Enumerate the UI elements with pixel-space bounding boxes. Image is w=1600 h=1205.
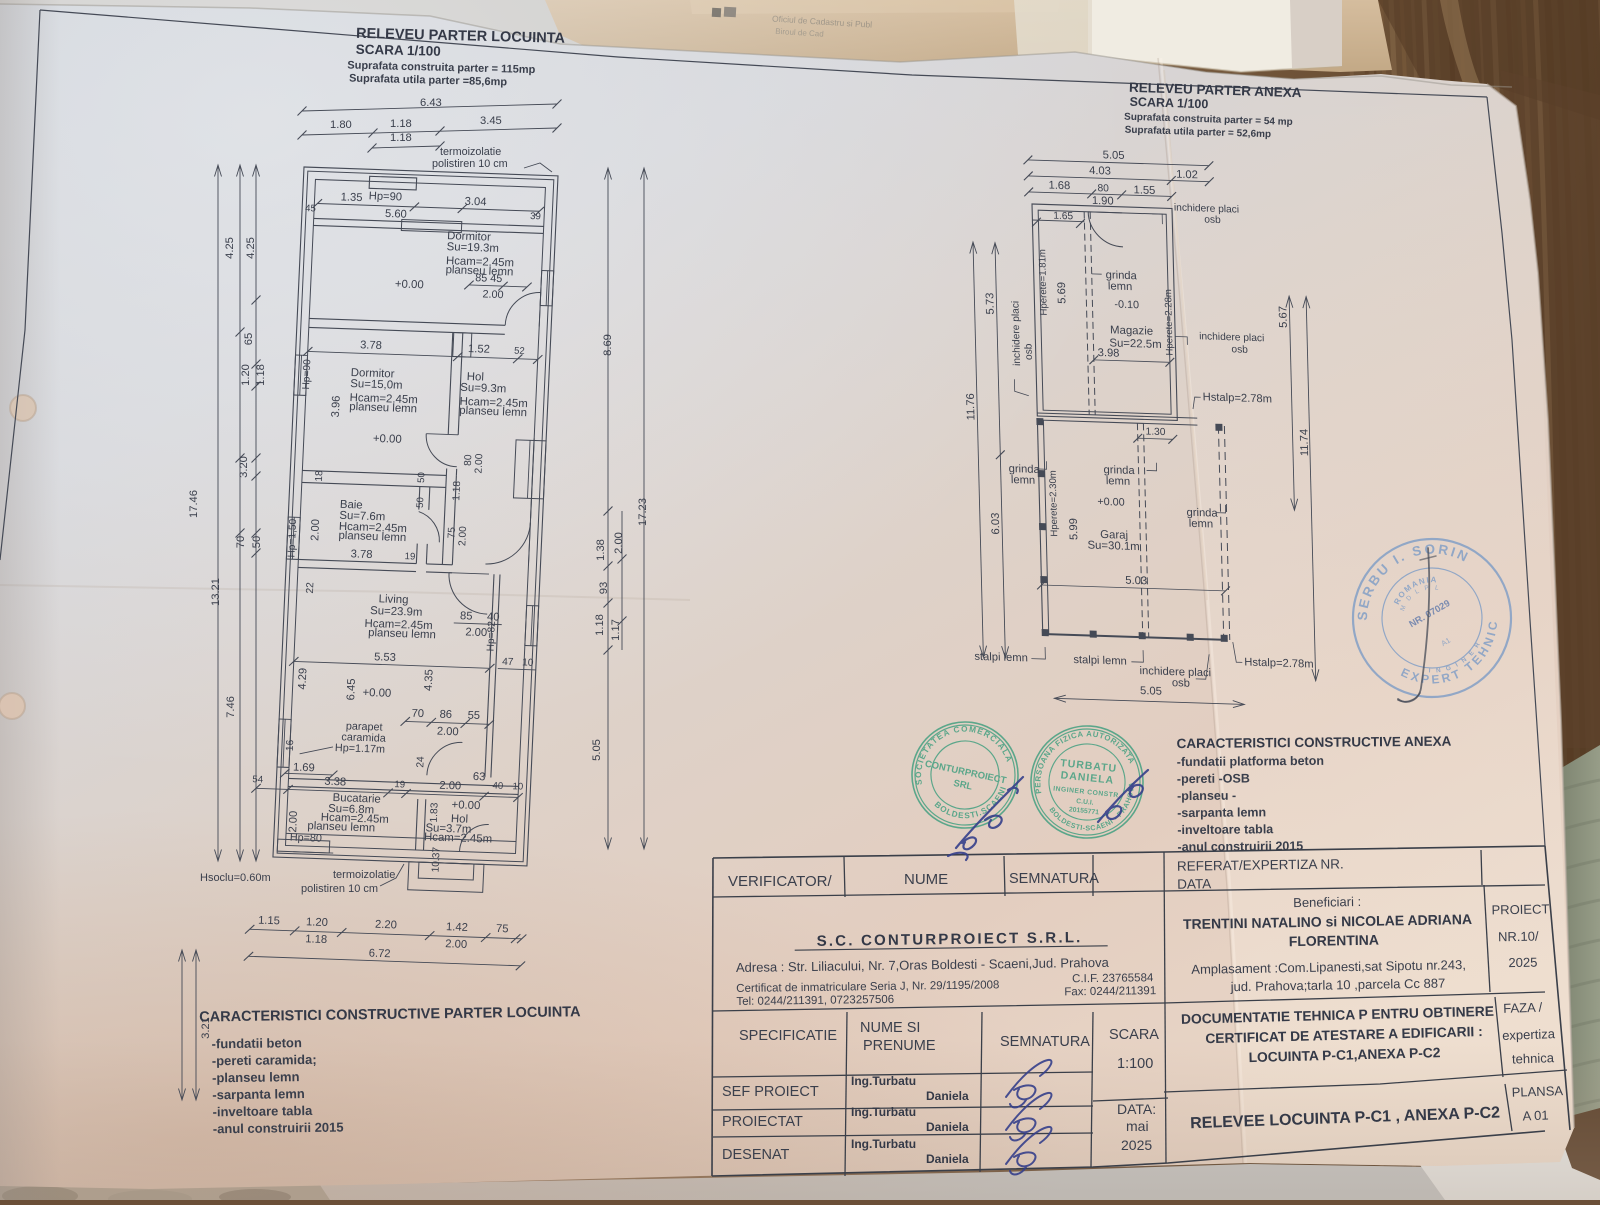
svg-text:19: 19 — [404, 551, 415, 562]
svg-text:3.78: 3.78 — [360, 339, 382, 352]
svg-text:Hsoclu=0.60m: Hsoclu=0.60m — [200, 872, 271, 884]
svg-text:Su=30.1m: Su=30.1m — [1087, 540, 1140, 554]
svg-text:1.69: 1.69 — [293, 762, 315, 775]
svg-text:11.74: 11.74 — [1298, 429, 1311, 457]
svg-text:-inveltoare tabla: -inveltoare tabla — [1177, 822, 1274, 837]
svg-text:80: 80 — [1097, 183, 1109, 194]
svg-text:inchidere placi: inchidere placi — [1199, 331, 1264, 344]
svg-text:5.05: 5.05 — [1103, 149, 1125, 162]
svg-text:2.00: 2.00 — [613, 532, 625, 554]
svg-text:lemn: lemn — [1108, 280, 1133, 293]
svg-text:2.00: 2.00 — [309, 519, 322, 541]
svg-text:stalpi lemn: stalpi lemn — [1073, 654, 1127, 668]
svg-text:Hperete=1.81m: Hperete=1.81m — [1037, 249, 1050, 316]
svg-text:1.52: 1.52 — [468, 343, 490, 356]
svg-text:SCARA 1/100: SCARA 1/100 — [1129, 95, 1208, 111]
svg-text:expertiza: expertiza — [1502, 1026, 1556, 1043]
svg-text:-pereti caramida;: -pereti caramida; — [212, 1052, 317, 1068]
svg-text:Hp=90: Hp=90 — [369, 190, 403, 203]
svg-text:DATA: DATA — [1177, 876, 1211, 891]
svg-text:22: 22 — [305, 582, 317, 594]
svg-text:70: 70 — [411, 708, 424, 720]
svg-text:+0.00: +0.00 — [373, 433, 402, 446]
svg-text:16: 16 — [285, 739, 297, 751]
svg-text:4.25: 4.25 — [224, 237, 236, 259]
svg-text:osb: osb — [1204, 215, 1221, 227]
svg-text:3.98: 3.98 — [1098, 347, 1120, 360]
svg-text:1.55: 1.55 — [1133, 184, 1155, 197]
svg-text:planseu lemn: planseu lemn — [349, 401, 417, 415]
svg-text:2.00: 2.00 — [445, 938, 467, 951]
svg-text:1.02: 1.02 — [1176, 169, 1198, 182]
svg-text:1.80: 1.80 — [330, 119, 352, 131]
svg-text:1.68: 1.68 — [1048, 180, 1070, 193]
svg-text:6.72: 6.72 — [368, 948, 390, 961]
svg-text:planseu lemn: planseu lemn — [338, 530, 406, 544]
svg-text:Daniela: Daniela — [926, 1120, 969, 1134]
svg-text:NUME SI: NUME SI — [860, 1020, 920, 1036]
svg-text:70: 70 — [235, 536, 247, 548]
svg-text:Hperete=2.28m: Hperete=2.28m — [1163, 289, 1176, 356]
svg-text:mai: mai — [1126, 1118, 1149, 1134]
svg-text:5.53: 5.53 — [374, 651, 396, 664]
svg-text:-pereti -OSB: -pereti -OSB — [1177, 771, 1250, 786]
svg-text:2.00: 2.00 — [457, 526, 469, 547]
svg-text:Su=9.3m: Su=9.3m — [460, 382, 506, 396]
svg-text:-fundatii beton: -fundatii beton — [212, 1035, 303, 1051]
svg-text:termoizolatie: termoizolatie — [333, 869, 395, 881]
svg-text:4.35: 4.35 — [423, 669, 436, 691]
svg-text:Su=23.9m: Su=23.9m — [370, 605, 423, 619]
svg-text:Ing.Turbatu: Ing.Turbatu — [851, 1137, 916, 1151]
svg-text:SEMNATURA: SEMNATURA — [1000, 1034, 1090, 1050]
svg-text:45: 45 — [305, 203, 316, 214]
svg-text:85: 85 — [460, 610, 473, 622]
svg-text:+0.00: +0.00 — [395, 278, 424, 291]
svg-text:3.96: 3.96 — [330, 395, 343, 417]
svg-text:PRENUME: PRENUME — [863, 1038, 936, 1054]
svg-text:3.78: 3.78 — [350, 548, 372, 561]
svg-text:PLANSA: PLANSA — [1511, 1083, 1563, 1100]
svg-text:FLORENTINA: FLORENTINA — [1289, 932, 1379, 950]
svg-text:2.00: 2.00 — [465, 626, 487, 639]
svg-text:planseu lemn: planseu lemn — [459, 405, 527, 419]
svg-text:75: 75 — [496, 923, 509, 935]
svg-text:1.18: 1.18 — [305, 933, 327, 946]
svg-text:lemn: lemn — [1106, 475, 1131, 488]
svg-text:1.18: 1.18 — [255, 364, 267, 386]
svg-text:63: 63 — [473, 771, 486, 783]
svg-text:5.99: 5.99 — [1068, 518, 1081, 540]
svg-text:polistiren 10 cm: polistiren 10 cm — [432, 158, 508, 170]
svg-text:1.17: 1.17 — [610, 619, 622, 641]
svg-text:17.23: 17.23 — [637, 498, 649, 526]
svg-text:SCARA: SCARA — [1109, 1027, 1159, 1043]
svg-text:5.03: 5.03 — [1125, 575, 1147, 588]
svg-text:39: 39 — [530, 211, 541, 222]
svg-text:3.04: 3.04 — [464, 196, 486, 209]
svg-text:NR.10/: NR.10/ — [1498, 929, 1539, 945]
svg-text:-planseu lemn: -planseu lemn — [212, 1069, 300, 1085]
svg-text:1.15: 1.15 — [258, 915, 280, 928]
svg-text:6.45: 6.45 — [345, 678, 358, 700]
svg-text:osb: osb — [1231, 344, 1248, 356]
svg-text:A 01: A 01 — [1522, 1108, 1549, 1124]
svg-text:50: 50 — [416, 472, 427, 483]
svg-text:1:100: 1:100 — [1117, 1056, 1153, 1072]
svg-text:1.18: 1.18 — [390, 118, 412, 130]
svg-text:DATA:: DATA: — [1117, 1101, 1156, 1117]
svg-text:1.30: 1.30 — [1145, 426, 1165, 438]
svg-text:Su=19.3m: Su=19.3m — [446, 241, 499, 255]
svg-text:VERIFICATOR/: VERIFICATOR/ — [728, 873, 832, 890]
svg-text:-inveltoare tabla: -inveltoare tabla — [212, 1103, 313, 1119]
svg-text:Ing.Turbatu: Ing.Turbatu — [851, 1074, 916, 1088]
svg-text:50: 50 — [251, 536, 263, 548]
svg-text:85 45: 85 45 — [475, 272, 503, 285]
svg-text:93: 93 — [598, 582, 610, 594]
svg-text:inchidere placi: inchidere placi — [1010, 301, 1023, 366]
svg-text:Su=15,0m: Su=15,0m — [350, 378, 403, 392]
svg-text:lemn: lemn — [1189, 518, 1214, 531]
svg-text:3.45: 3.45 — [480, 115, 502, 127]
svg-text:C.I.F. 23765584: C.I.F. 23765584 — [1072, 972, 1154, 985]
svg-text:1.65: 1.65 — [1053, 211, 1073, 223]
svg-text:1.42: 1.42 — [446, 921, 468, 934]
svg-text:planseu lemn: planseu lemn — [368, 627, 436, 641]
svg-text:5.60: 5.60 — [385, 208, 407, 221]
svg-text:tehnica: tehnica — [1512, 1050, 1555, 1066]
svg-text:1.35: 1.35 — [340, 191, 362, 204]
svg-text:Daniela: Daniela — [926, 1089, 969, 1103]
svg-text:5.05: 5.05 — [591, 739, 603, 761]
svg-text:2.00: 2.00 — [474, 453, 486, 474]
svg-text:18: 18 — [314, 470, 326, 482]
svg-text:PROIECTAT: PROIECTAT — [722, 1114, 803, 1130]
svg-text:40: 40 — [492, 781, 503, 792]
svg-text:Hstalp=2.78m: Hstalp=2.78m — [1244, 656, 1314, 670]
svg-text:-sarpanta lemn: -sarpanta lemn — [1177, 805, 1266, 820]
svg-text:1.20: 1.20 — [240, 364, 252, 386]
svg-text:Hstalp=2.78m: Hstalp=2.78m — [1203, 391, 1273, 405]
svg-text:3.38: 3.38 — [324, 776, 346, 789]
svg-text:Magazie: Magazie — [1110, 324, 1153, 337]
svg-text:2025: 2025 — [1508, 955, 1537, 971]
svg-text:2.00: 2.00 — [287, 811, 300, 833]
svg-text:REFERAT/EXPERTIZA NR.: REFERAT/EXPERTIZA NR. — [1177, 856, 1344, 873]
svg-text:75: 75 — [447, 527, 459, 539]
svg-text:-sarpanta lemn: -sarpanta lemn — [212, 1086, 305, 1102]
svg-text:-anul construirii 2015: -anul construirii 2015 — [213, 1120, 344, 1137]
svg-text:Ing.Turbatu: Ing.Turbatu — [851, 1105, 916, 1119]
svg-text:4.25: 4.25 — [245, 237, 257, 259]
svg-text:1.18: 1.18 — [594, 614, 606, 636]
svg-text:2025: 2025 — [1121, 1137, 1152, 1153]
svg-text:13.21: 13.21 — [210, 578, 222, 606]
svg-text:10.37: 10.37 — [431, 846, 443, 872]
svg-text:Beneficiari :: Beneficiari : — [1293, 894, 1361, 910]
svg-text:7.46: 7.46 — [225, 696, 237, 718]
svg-text:86: 86 — [439, 709, 452, 721]
svg-text:Hp=82: Hp=82 — [486, 621, 498, 652]
svg-text:1.90: 1.90 — [1092, 195, 1114, 208]
svg-text:24: 24 — [415, 756, 427, 768]
svg-text:6.03: 6.03 — [990, 513, 1003, 535]
svg-text:Hp=1,50: Hp=1,50 — [286, 518, 299, 557]
svg-text:52: 52 — [514, 346, 525, 357]
svg-text:CARACTERISTICI CONSTRUCTIVE AN: CARACTERISTICI CONSTRUCTIVE ANEXA — [1177, 734, 1452, 751]
svg-text:1.18: 1.18 — [390, 132, 412, 144]
svg-text:1.83: 1.83 — [429, 802, 441, 823]
svg-text:2.00: 2.00 — [482, 288, 504, 301]
svg-text:1.38: 1.38 — [595, 539, 607, 561]
svg-text:lemn: lemn — [1011, 474, 1036, 487]
svg-text:6.43: 6.43 — [420, 97, 442, 109]
svg-text:osb: osb — [1023, 343, 1034, 360]
svg-text:47: 47 — [502, 657, 514, 668]
svg-text:2.00: 2.00 — [439, 780, 461, 793]
svg-text:4.03: 4.03 — [1089, 165, 1111, 178]
svg-text:polistiren 10 cm: polistiren 10 cm — [301, 883, 378, 895]
svg-text:5.73: 5.73 — [984, 293, 997, 315]
svg-text:17.46: 17.46 — [188, 490, 200, 518]
svg-text:54: 54 — [252, 774, 264, 785]
svg-text:4.29: 4.29 — [297, 668, 310, 690]
svg-text:1.18: 1.18 — [451, 480, 463, 501]
svg-text:-planseu -: -planseu - — [1177, 789, 1236, 804]
svg-text:19: 19 — [394, 779, 405, 790]
svg-text:PROIECT: PROIECT — [1491, 901, 1549, 917]
svg-text:3.20: 3.20 — [238, 456, 250, 478]
svg-text:SEMNATURA: SEMNATURA — [1009, 871, 1099, 887]
svg-text:65: 65 — [243, 333, 255, 345]
svg-text:2.00: 2.00 — [437, 726, 459, 739]
svg-text:5.69: 5.69 — [1056, 282, 1069, 304]
svg-text:8.69: 8.69 — [602, 334, 614, 356]
svg-text:10: 10 — [512, 781, 523, 792]
svg-text:SCARA 1/100: SCARA 1/100 — [356, 42, 441, 59]
svg-text:Fax: 0244/211391: Fax: 0244/211391 — [1064, 985, 1156, 998]
svg-text:+0.00: +0.00 — [1097, 496, 1125, 509]
svg-text:Hp=90: Hp=90 — [301, 359, 313, 390]
svg-text:SPECIFICATIE: SPECIFICATIE — [739, 1028, 837, 1044]
svg-text:+0.00: +0.00 — [451, 799, 480, 812]
svg-text:SEF PROIECT: SEF PROIECT — [722, 1084, 819, 1100]
svg-text:2.20: 2.20 — [375, 919, 397, 932]
svg-text:termoizolatie: termoizolatie — [440, 146, 501, 158]
svg-text:5.05: 5.05 — [1140, 685, 1162, 698]
svg-text:Daniela: Daniela — [926, 1152, 969, 1166]
svg-text:-fundatii platforma beton: -fundatii platforma beton — [1177, 754, 1324, 769]
svg-text:Hp=1.17m: Hp=1.17m — [335, 742, 386, 756]
svg-text:NUME: NUME — [904, 871, 948, 888]
svg-text:11.76: 11.76 — [965, 393, 978, 421]
svg-text:osb: osb — [1172, 677, 1190, 690]
svg-text:80: 80 — [463, 454, 475, 466]
svg-text:-0.10: -0.10 — [1114, 299, 1139, 312]
svg-text:+0.00: +0.00 — [362, 687, 391, 700]
svg-text:1.20: 1.20 — [306, 916, 328, 929]
svg-text:Tel: 0244/211391, 0723257506: Tel: 0244/211391, 0723257506 — [736, 994, 894, 1008]
svg-text:DESENAT: DESENAT — [722, 1147, 790, 1163]
svg-text:10: 10 — [522, 657, 534, 668]
svg-text:50: 50 — [415, 497, 426, 508]
svg-text:5.67: 5.67 — [1277, 306, 1290, 328]
svg-text:Hperete=2.30m: Hperete=2.30m — [1048, 470, 1061, 537]
svg-text:Living: Living — [378, 593, 408, 606]
svg-text:FAZA /: FAZA / — [1503, 1000, 1543, 1016]
